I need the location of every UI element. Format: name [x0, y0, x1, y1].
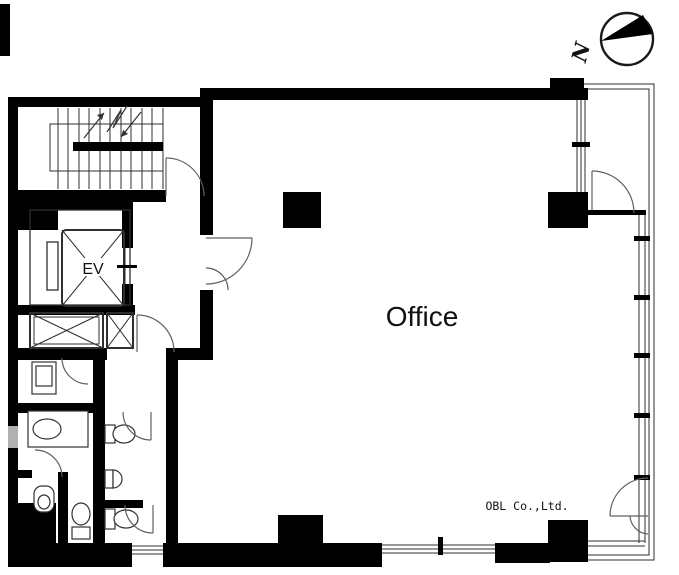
office-room-label: Office: [386, 301, 459, 332]
column: [548, 192, 588, 228]
staircase: [50, 106, 163, 189]
company-credit-label: OBL Co.,Ltd.: [485, 499, 568, 513]
window-mullion: [634, 353, 650, 358]
restrooms: [28, 362, 138, 539]
elevator-door: [117, 248, 137, 284]
column: [278, 515, 323, 543]
slop-sink-icon: [32, 362, 56, 394]
door-swing-arc-icon: [62, 358, 88, 384]
door-swing-arc-icon: [206, 238, 252, 290]
elevator-counterweight: [47, 242, 58, 290]
toilet-icon: [72, 503, 90, 539]
vanity-counter: [28, 411, 88, 447]
balcony-outline: [583, 84, 654, 560]
floor-plan: EV: [0, 0, 679, 575]
window-mullion: [572, 142, 590, 147]
pipe-shaft-x-icon: [107, 313, 133, 348]
door-swing-arc-icon: [35, 450, 62, 477]
pipe-shafts: [30, 313, 133, 348]
door-swing-arc-icon: [610, 478, 648, 534]
toilet-icon: [105, 425, 135, 443]
toilet-icon: [105, 509, 138, 529]
window-mullion: [634, 236, 650, 241]
corner-basin-icon: [105, 470, 122, 488]
left-wall-window: [8, 426, 18, 448]
window-mullion: [438, 537, 443, 555]
door-swing-arc-icon: [166, 158, 204, 196]
door-swing-arc-icon: [592, 171, 634, 213]
door-swing-arc-icon: [125, 505, 153, 533]
compass-north-label: N: [566, 39, 596, 66]
floor-plan-canvas: EV: [0, 0, 679, 575]
urinal-icon: [34, 486, 54, 512]
wash-basin-icon: [33, 419, 61, 439]
scan-edge-artifact: [0, 4, 10, 56]
stair-direction-arrow-icon: [84, 106, 141, 138]
window-mullion: [634, 295, 650, 300]
door-swing-arc-icon: [137, 315, 174, 352]
column: [548, 520, 588, 562]
window-mullion: [634, 413, 650, 418]
column: [283, 192, 321, 228]
elevator-label: EV: [82, 261, 104, 278]
pipe-shaft-x-icon: [30, 313, 103, 348]
compass-north-icon: N: [566, 13, 653, 66]
stair-landing-bar: [73, 142, 163, 151]
